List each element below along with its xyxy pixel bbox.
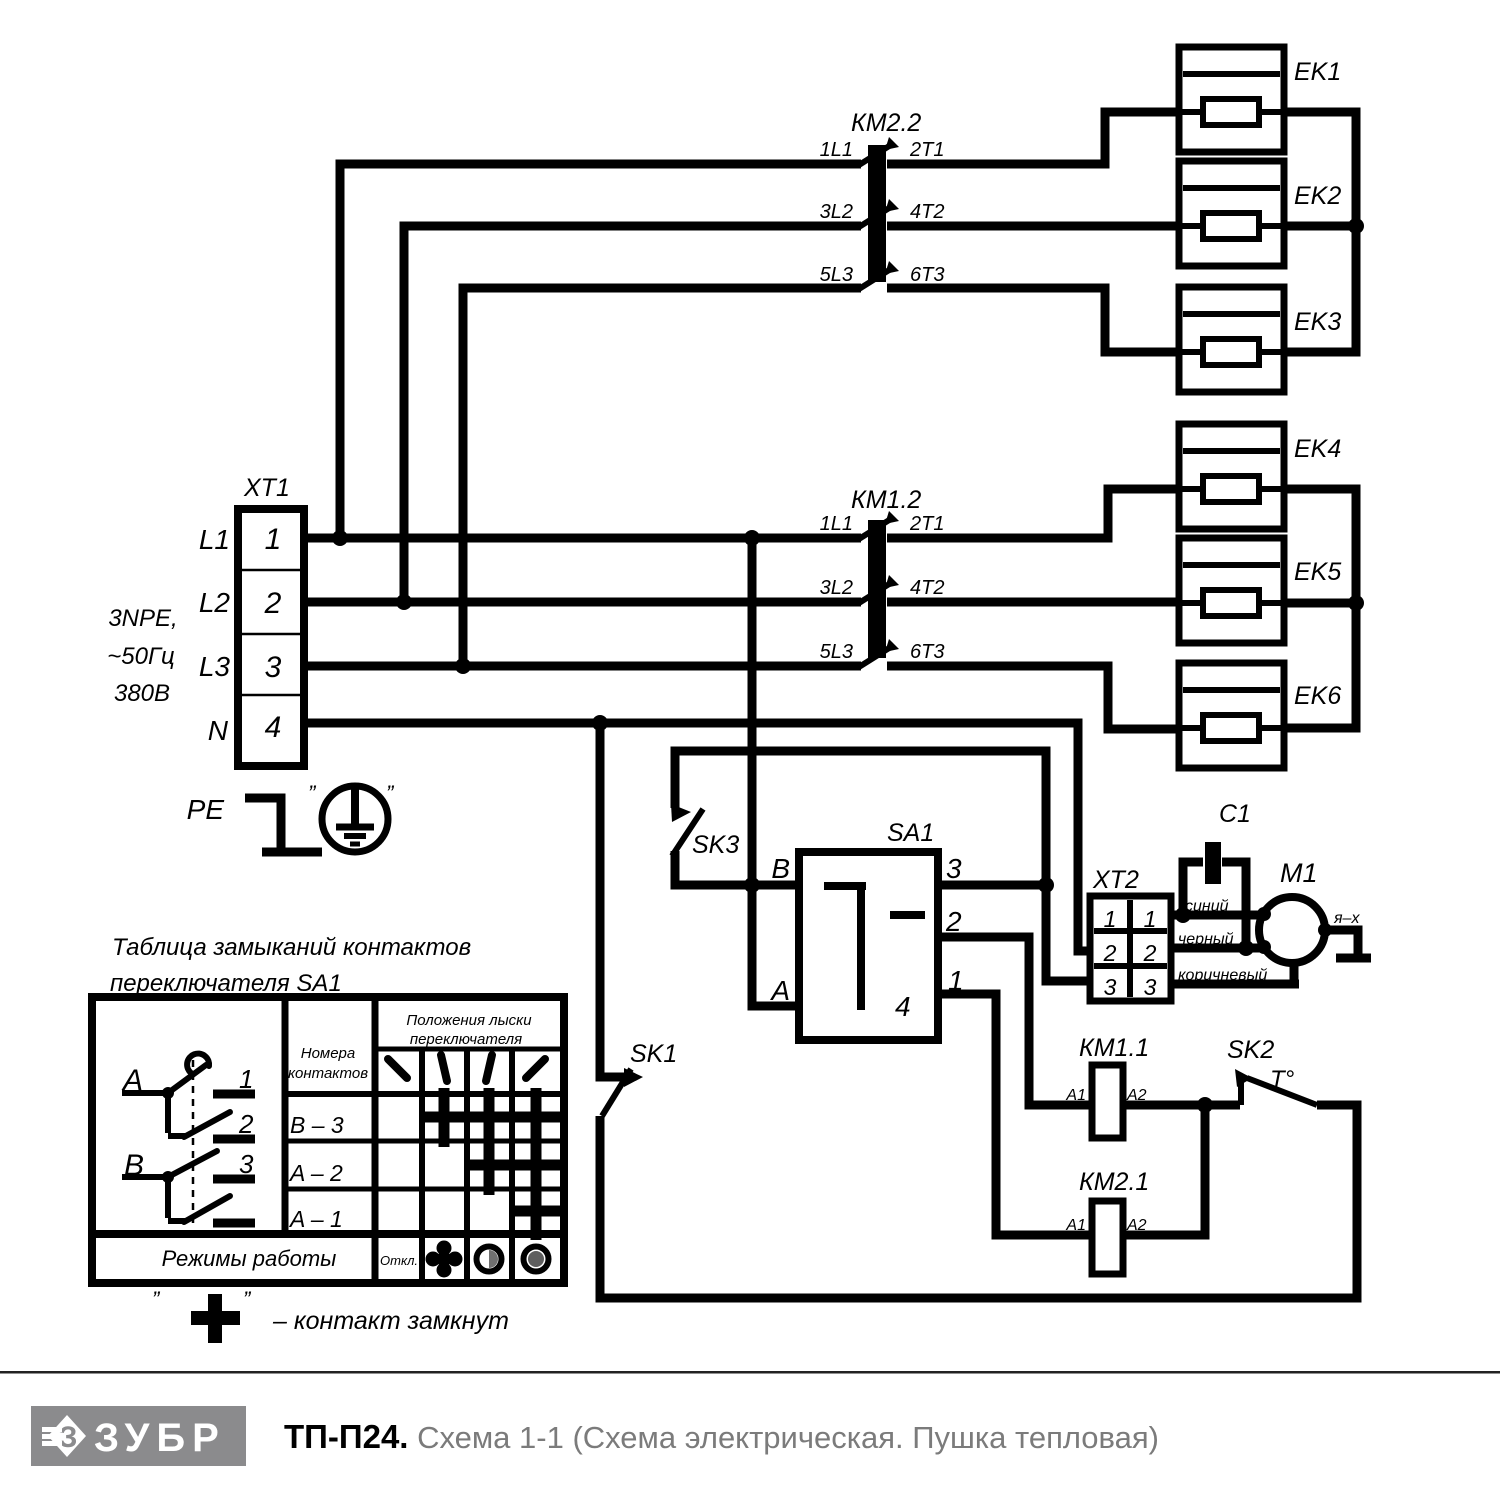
svg-text:2: 2	[1103, 940, 1117, 966]
svg-text:контактов: контактов	[288, 1065, 368, 1082]
svg-text:я–х: я–х	[1333, 910, 1360, 927]
svg-text:ЗУБР: ЗУБР	[94, 1416, 226, 1460]
svg-text:380В: 380В	[114, 680, 170, 707]
svg-text:EK3: EK3	[1294, 308, 1341, 336]
svg-text:XT1: XT1	[243, 474, 290, 502]
svg-text:M1: M1	[1280, 858, 1318, 888]
svg-text:T°: T°	[1270, 1066, 1295, 1093]
svg-text:КМ2.2: КМ2.2	[851, 109, 921, 137]
svg-text:3L2: 3L2	[820, 201, 853, 223]
svg-text:– контакт замкнут: – контакт замкнут	[272, 1307, 509, 1335]
svg-text:2: 2	[945, 906, 962, 937]
svg-text:3: 3	[265, 651, 282, 684]
svg-text:КМ1.2: КМ1.2	[851, 486, 921, 514]
svg-text:B – 3: B – 3	[290, 1112, 344, 1138]
svg-text:Откл.: Откл.	[380, 1253, 418, 1268]
svg-text:3: 3	[946, 853, 962, 884]
svg-text:A – 2: A – 2	[288, 1160, 343, 1186]
svg-text:5L3: 5L3	[820, 641, 853, 663]
svg-text:черный: черный	[1178, 931, 1234, 948]
svg-text:2: 2	[1143, 940, 1157, 966]
svg-text:2: 2	[238, 1109, 254, 1139]
svg-text:A – 1: A – 1	[288, 1206, 343, 1232]
svg-text:2: 2	[264, 587, 282, 620]
svg-text:L1: L1	[199, 524, 230, 555]
svg-text:SA1: SA1	[887, 819, 934, 847]
svg-text:1L1: 1L1	[820, 139, 853, 161]
svg-text:B: B	[771, 853, 790, 884]
svg-text:~50Гц: ~50Гц	[107, 643, 175, 670]
svg-text:Таблица замыканий контактов: Таблица замыканий контактов	[112, 934, 471, 961]
svg-text:EK4: EK4	[1294, 435, 1341, 463]
svg-text:EK1: EK1	[1294, 58, 1341, 86]
svg-text:A2: A2	[1126, 1217, 1147, 1234]
svg-text:5L3: 5L3	[820, 264, 853, 286]
svg-text:1: 1	[1104, 906, 1117, 932]
svg-text:3L2: 3L2	[820, 577, 853, 599]
svg-text:N: N	[208, 715, 229, 746]
svg-text:A2: A2	[1126, 1087, 1147, 1104]
svg-text:4: 4	[265, 711, 282, 744]
svg-text:6T3: 6T3	[910, 641, 944, 663]
svg-text:L3: L3	[199, 651, 231, 682]
svg-text:A1: A1	[1065, 1217, 1086, 1234]
svg-text:Режимы работы: Режимы работы	[162, 1246, 337, 1271]
svg-text:2T1: 2T1	[909, 139, 944, 161]
svg-text:A1: A1	[1065, 1087, 1086, 1104]
svg-text:1: 1	[1144, 906, 1157, 932]
svg-text:2T1: 2T1	[909, 513, 944, 535]
svg-text:переключателя: переключателя	[410, 1031, 522, 1048]
svg-text:PE: PE	[187, 794, 225, 825]
svg-text:синий: синий	[1185, 898, 1229, 915]
svg-text:EK6: EK6	[1294, 682, 1341, 710]
svg-text:C1: C1	[1219, 800, 1251, 828]
svg-text:4T2: 4T2	[910, 201, 944, 223]
svg-text:3: 3	[1104, 974, 1117, 1000]
svg-text:Номера: Номера	[301, 1045, 356, 1062]
svg-text:4T2: 4T2	[910, 577, 944, 599]
svg-text:EK5: EK5	[1294, 558, 1341, 586]
svg-text:SK1: SK1	[630, 1040, 677, 1068]
svg-text:1: 1	[239, 1064, 253, 1094]
svg-text:3NPE,: 3NPE,	[108, 605, 177, 632]
svg-text:A: A	[121, 1064, 143, 1097]
svg-text:1L1: 1L1	[820, 513, 853, 535]
svg-text:3: 3	[1144, 974, 1157, 1000]
svg-text:КМ1.1: КМ1.1	[1079, 1034, 1149, 1062]
svg-text:переключателя SA1: переключателя SA1	[110, 970, 342, 997]
svg-text:XT2: XT2	[1092, 866, 1139, 894]
svg-text:SK2: SK2	[1227, 1036, 1274, 1064]
svg-text:1: 1	[265, 523, 282, 556]
svg-text:L2: L2	[199, 587, 231, 618]
svg-text:A: A	[769, 975, 790, 1006]
svg-text:1: 1	[948, 965, 964, 996]
svg-text:4: 4	[895, 991, 911, 1022]
svg-text:EK2: EK2	[1294, 182, 1341, 210]
svg-text:6T3: 6T3	[910, 264, 944, 286]
svg-text:Положения лыски: Положения лыски	[406, 1012, 532, 1029]
svg-text:SK3: SK3	[692, 831, 739, 859]
svg-text:3: 3	[239, 1149, 254, 1179]
svg-text:КМ2.1: КМ2.1	[1079, 1168, 1149, 1196]
svg-text:коричневый: коричневый	[1178, 967, 1267, 984]
svg-text:ТП-П24. Схема 1-1 (Схема элект: ТП-П24. Схема 1-1 (Схема электрическая. …	[284, 1418, 1159, 1455]
svg-text:B: B	[124, 1149, 144, 1182]
